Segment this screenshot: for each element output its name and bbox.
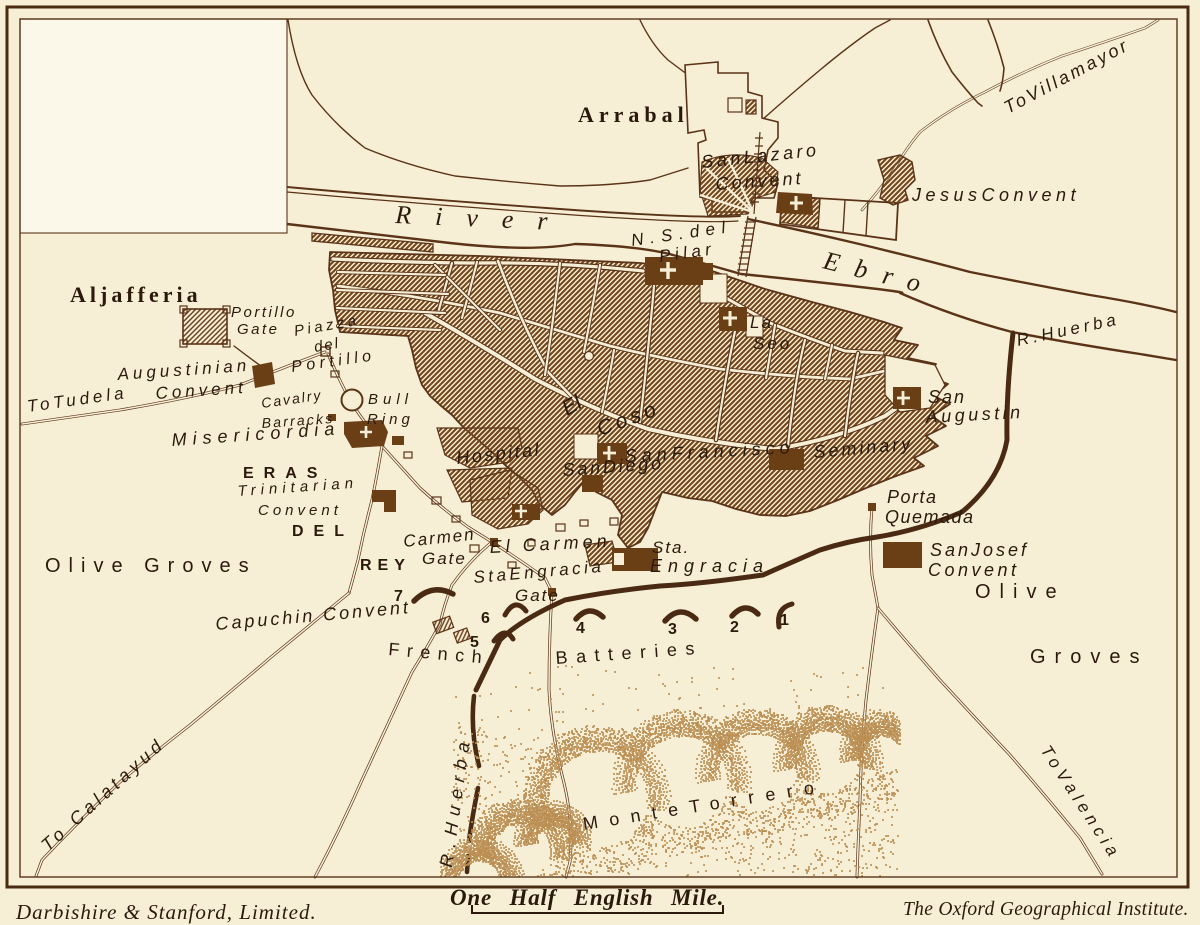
svg-text:Arrabal: Arrabal	[578, 102, 689, 127]
svg-text:Quemada: Quemada	[885, 507, 975, 527]
svg-text:Olive Groves: Olive Groves	[45, 555, 257, 577]
svg-text:1: 1	[780, 612, 789, 629]
svg-text:4: 4	[576, 620, 585, 637]
svg-text:Gate: Gate	[237, 321, 280, 338]
svg-text:7: 7	[394, 588, 403, 605]
svg-text:Sta.: Sta.	[652, 538, 690, 557]
svg-text:Convent: Convent	[928, 560, 1020, 580]
svg-text:Gate: Gate	[515, 586, 560, 605]
svg-text:6: 6	[481, 610, 490, 627]
svg-text:Engracia: Engracia	[650, 556, 769, 576]
svg-text:Convent: Convent	[258, 502, 342, 519]
svg-text:5: 5	[470, 634, 479, 651]
svg-text:Olive: Olive	[975, 581, 1066, 603]
svg-text:Aljafferia: Aljafferia	[70, 282, 202, 307]
svg-text:Seo: Seo	[753, 334, 792, 353]
svg-text:Ring: Ring	[367, 411, 414, 428]
svg-text:Portillo: Portillo	[231, 304, 297, 321]
svg-text:The Oxford Geographical Instit: The Oxford Geographical Institute.	[903, 899, 1189, 920]
svg-text:2: 2	[730, 619, 739, 636]
svg-text:Darbishire & Stanford, Limited: Darbishire & Stanford, Limited.	[15, 900, 317, 924]
svg-text:La: La	[750, 313, 773, 332]
svg-text:JesusConvent: JesusConvent	[911, 185, 1080, 205]
svg-text:San: San	[928, 387, 966, 407]
svg-text:DEL: DEL	[292, 523, 354, 540]
svg-text:Gate: Gate	[422, 549, 467, 568]
svg-text:SanJosef: SanJosef	[930, 540, 1029, 560]
svg-text:One Half English Mile.: One Half English Mile.	[450, 885, 724, 910]
svg-text:Porta: Porta	[887, 487, 938, 507]
svg-text:Bull: Bull	[368, 391, 413, 408]
svg-text:3: 3	[668, 621, 677, 638]
svg-text:Groves: Groves	[1030, 646, 1148, 668]
svg-text:REY: REY	[360, 557, 411, 574]
